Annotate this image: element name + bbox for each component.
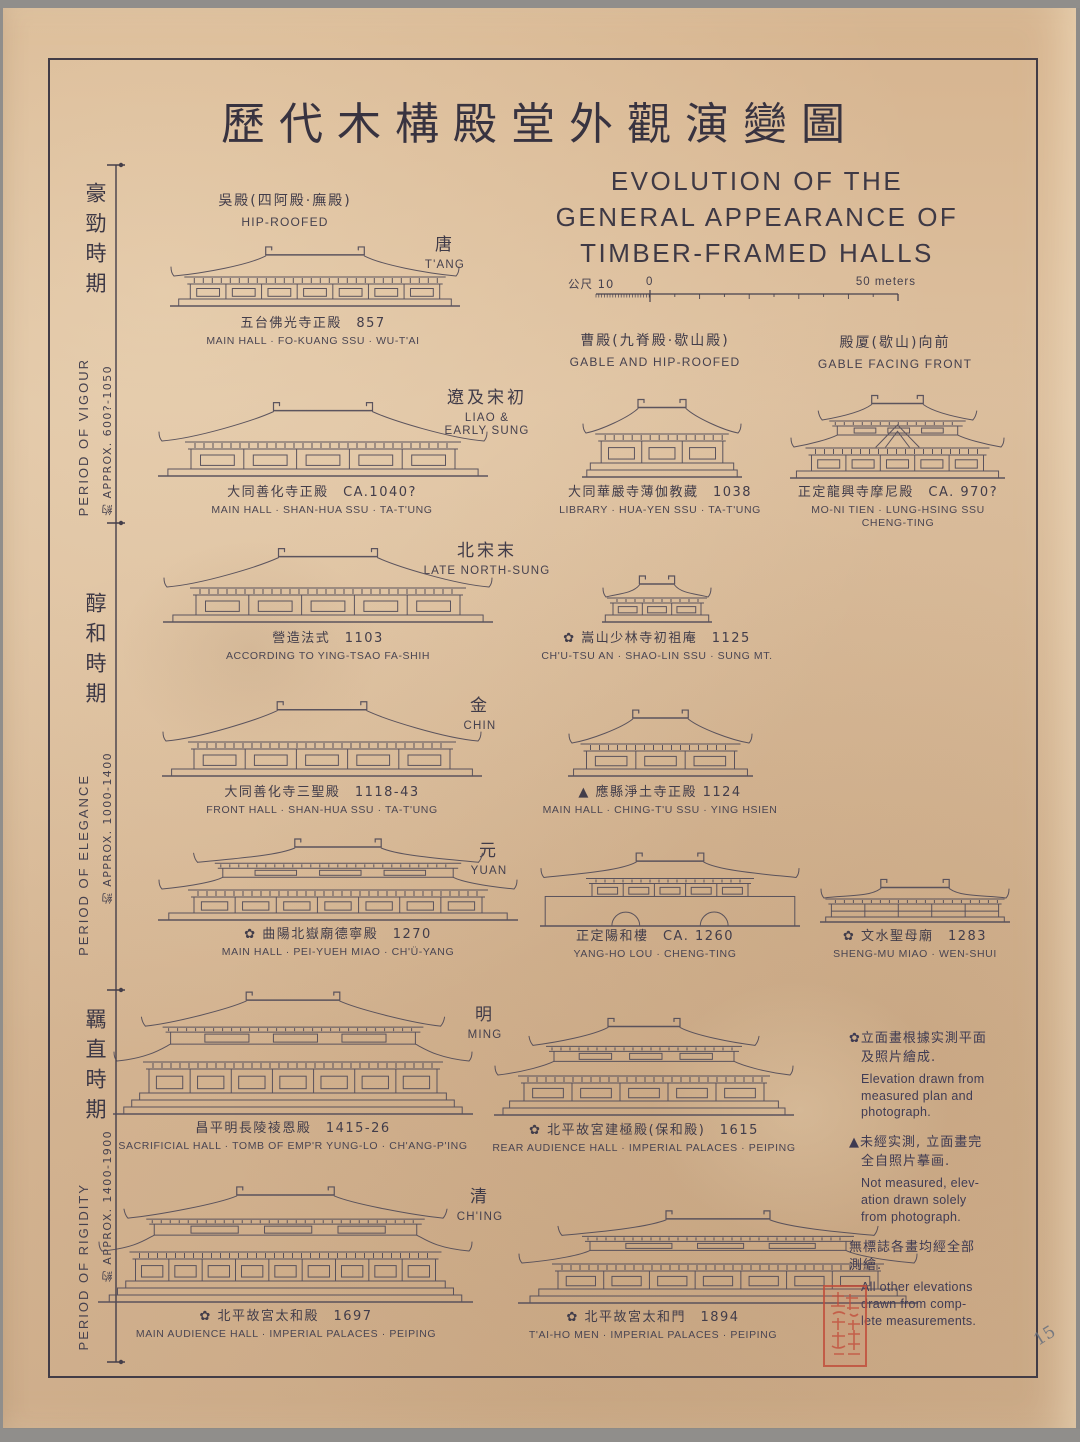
period-elegance-cn: 醇和時期	[80, 592, 110, 712]
caption-chingtu: ▲ 應縣淨土寺正殿 1124 MAIN HALL · CHING-T'U SSU…	[460, 781, 860, 816]
legend-0-cn2: 及照片繪成.	[849, 1049, 1031, 1068]
legend-item-measured-plan: ✿立面畫根據实測平面 及照片繪成. Elevation drawn from m…	[849, 1030, 1031, 1121]
caption-chingtu-cn: ▲ 應縣淨土寺正殿 1124	[460, 781, 860, 800]
elevation-fokuang-hall	[170, 246, 460, 313]
elevation-huayen-library	[582, 394, 742, 484]
caption-taiho-tien-cn: ✿ 北平故宮太和殿 1697	[86, 1305, 486, 1324]
elevation-chingtu-hall	[568, 700, 753, 783]
elevation-changling-sacrificial-hall	[113, 986, 473, 1121]
sheet-photo: 歷代木構殿堂外觀演變圖 EVOLUTION OF THE GENERAL APP…	[0, 0, 1080, 1442]
scale-bar-ruler	[566, 290, 918, 306]
caption-fokuang-en: MAIN HALL · FO-KUANG SSU · WU-T'AI	[113, 335, 513, 347]
period-vigour-en: PERIOD OF VIGOUR	[76, 358, 91, 516]
caption-shengmu-cn: ✿ 文水聖母廟 1283	[715, 925, 1080, 944]
caption-moni-cn: 正定龍興寺摩尼殿 CA. 970?	[698, 481, 1080, 500]
legend-item-full-measurement: 無標誌各畫均經全部 測繪. All other elevations drawn…	[849, 1239, 1031, 1330]
header-hip-roofed: 吳殿(四阿殿·廡殿) HIP-ROOFED	[135, 190, 435, 229]
header-hip-roofed-en: HIP-ROOFED	[135, 215, 435, 229]
caption-paoho-en: REAR AUDIENCE HALL · IMPERIAL PALACES · …	[444, 1142, 844, 1154]
period-elegance-range: 約 APPROX. 1000-1400	[100, 752, 116, 904]
legend-1-en3: from photograph.	[861, 1209, 1031, 1226]
legend-0-en1: Elevation drawn from	[861, 1071, 1031, 1088]
photo-edge-left	[0, 0, 3, 1442]
page-title-en: EVOLUTION OF THE GENERAL APPEARANCE OF T…	[552, 163, 962, 271]
photo-edge-bottom	[0, 1429, 1080, 1442]
legend-2-cn1: 無標誌各畫均經全部	[849, 1239, 1031, 1258]
caption-changling-cn: 昌平明長陵祾恩殿 1415-26	[93, 1117, 493, 1136]
red-seal	[822, 1284, 868, 1368]
elevation-taiho-tien	[98, 1182, 473, 1309]
caption-moni: 正定龍興寺摩尼殿 CA. 970? MO-NI TIEN · LUNG-HSIN…	[698, 481, 1080, 529]
legend-0-en3: photograph.	[861, 1104, 1031, 1121]
elevation-shengmu-miao	[820, 876, 1010, 929]
caption-paoho-cn: ✿ 北平故宮建極殿(保和殿) 1615	[444, 1119, 844, 1138]
page-title-en-line3: TIMBER-FRAMED HALLS	[552, 235, 962, 271]
caption-chutsu-en: CH'U-TSU AN · SHAO-LIN SSU · SUNG MT.	[457, 650, 857, 662]
period-vigour: 豪勁時期 PERIOD OF VIGOUR 約 APPROX. 600?-105…	[56, 170, 118, 518]
legend-2-en1: All other elevations	[861, 1279, 1031, 1296]
header-hip-roofed-cn: 吳殿(四阿殿·廡殿)	[135, 190, 435, 210]
caption-shengmu: ✿ 文水聖母廟 1283 SHENG-MU MIAO · WEN-SHUI	[715, 925, 1080, 960]
legend-2-en3: lete measurements.	[861, 1313, 1031, 1330]
elevation-yingtsao-fashih-hall	[163, 532, 493, 629]
period-elegance-en: PERIOD OF ELEGANCE	[76, 774, 91, 956]
page-title-cn: 歷代木構殿堂外觀演變圖	[140, 88, 940, 152]
caption-shengmu-en: SHENG-MU MIAO · WEN-SHUI	[715, 948, 1080, 960]
caption-fokuang: 五台佛光寺正殿 857 MAIN HALL · FO-KUANG SSU · W…	[113, 312, 513, 347]
legend-1-cn2: 全自照片摹画.	[849, 1153, 1031, 1172]
scale-bar: 公尺 10 0 50 meters	[566, 276, 918, 306]
period-rigidity-cn: 羈直時期	[80, 1008, 110, 1128]
legend-1-en2: ation drawn solely	[861, 1192, 1031, 1209]
period-vigour-range: 約 APPROX. 600?-1050	[100, 365, 116, 516]
page-title-en-line2: GENERAL APPEARANCE OF	[552, 199, 962, 235]
header-gable-front-en: GABLE FACING FRONT	[745, 357, 1045, 371]
scale-right-label: 50 meters	[856, 276, 916, 288]
elevation-shanhua-main-hall	[158, 386, 488, 483]
legend: ✿立面畫根據实測平面 及照片繪成. Elevation drawn from m…	[849, 1030, 1031, 1343]
caption-taiho-tien-en: MAIN AUDIENCE HALL · IMPERIAL PALACES · …	[86, 1328, 486, 1340]
legend-2-cn2: 測繪.	[849, 1257, 1031, 1276]
elevation-yangho-lou	[540, 846, 800, 933]
legend-0-en2: measured plan and	[861, 1088, 1031, 1105]
caption-paoho: ✿ 北平故宮建極殿(保和殿) 1615 REAR AUDIENCE HALL ·…	[444, 1119, 844, 1154]
page-title-en-line1: EVOLUTION OF THE	[552, 163, 962, 199]
caption-taiho-men-cn: ✿ 北平故宮太和門 1894	[453, 1306, 853, 1325]
elevation-moni-tien	[790, 388, 1005, 485]
caption-chutsu-cn: ✿ 嵩山少林寺初祖庵 1125	[457, 627, 857, 646]
triangle-mark-icon: ▲	[849, 1135, 860, 1150]
caption-taiho-tien: ✿ 北平故宮太和殿 1697 MAIN AUDIENCE HALL · IMPE…	[86, 1305, 486, 1340]
caption-chingtu-en: MAIN HALL · CHING-T'U SSU · YING HSIEN	[460, 804, 860, 816]
caption-chutsu: ✿ 嵩山少林寺初祖庵 1125 CH'U-TSU AN · SHAO-LIN S…	[457, 627, 857, 662]
legend-2-en2: drawn from comp-	[861, 1296, 1031, 1313]
header-gable-front: 殿厦(歇山)向前 GABLE FACING FRONT	[745, 332, 1045, 371]
legend-0-cn1: 立面畫根據实測平面	[861, 1031, 987, 1046]
caption-changling: 昌平明長陵祾恩殿 1415-26 SACRIFICIAL HALL · TOMB…	[93, 1117, 493, 1152]
period-elegance: 醇和時期 PERIOD OF ELEGANCE 約 APPROX. 1000-1…	[56, 530, 118, 986]
caption-changling-en: SACRIFICIAL HALL · TOMB OF EMP'R YUNG-LO…	[93, 1140, 493, 1152]
caption-moni-en2: CHENG-TING	[698, 517, 1080, 529]
period-vigour-cn: 豪勁時期	[80, 182, 110, 302]
legend-1-en1: Not measured, elev-	[861, 1175, 1031, 1192]
caption-taiho-men: ✿ 北平故宮太和門 1894 T'AI-HO MEN · IMPERIAL PA…	[453, 1306, 853, 1341]
scale-zero-label: 0	[646, 276, 653, 288]
legend-item-photo-only: ▲未經实測, 立面畫完 全自照片摹画. Not measured, elev- …	[849, 1134, 1031, 1225]
elevation-sansheng-hall	[162, 686, 482, 783]
flower-mark-icon: ✿	[849, 1031, 861, 1046]
elevation-chutsu-an	[602, 574, 712, 629]
caption-moni-en: MO-NI TIEN · LUNG-HSING SSU	[698, 504, 1080, 516]
header-gable-front-cn: 殿厦(歇山)向前	[745, 332, 1045, 352]
caption-fokuang-cn: 五台佛光寺正殿 857	[113, 312, 513, 331]
caption-taiho-men-en: T'AI-HO MEN · IMPERIAL PALACES · PEIPING	[453, 1329, 853, 1341]
legend-1-cn1: 未經实測, 立面畫完	[860, 1135, 982, 1150]
photo-edge-top	[0, 0, 1080, 8]
elevation-paoho-tien	[494, 1012, 794, 1122]
elevation-peiyueh-miao-hall	[158, 832, 518, 927]
